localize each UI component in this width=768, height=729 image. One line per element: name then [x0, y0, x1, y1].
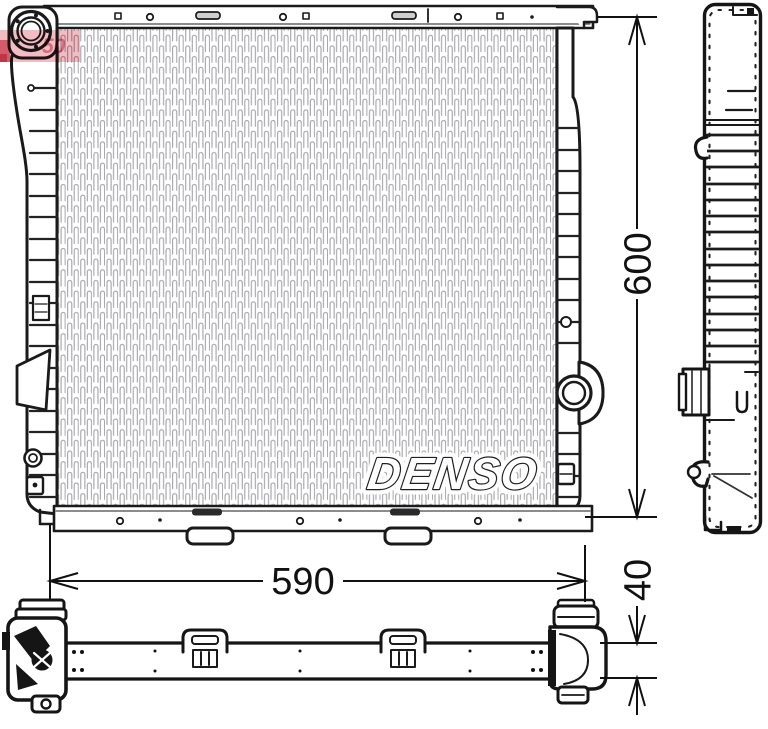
side-inlet-pipe [679, 369, 709, 415]
left-boss [25, 450, 42, 467]
bottom-body [62, 643, 553, 679]
watermark: 50 [0, 30, 80, 62]
watermark-text-fragment: 50 [42, 35, 66, 58]
mounting-tab-left [187, 528, 233, 544]
side-u-clip [737, 392, 747, 412]
left-tank [11, 27, 58, 524]
dimension-extension-lines [600, 643, 657, 678]
top-header [44, 6, 593, 28]
radiator-technical-drawing: DENSO DENSO [0, 0, 768, 729]
mounting-tab-right [385, 528, 431, 544]
dimension-height: 600 [585, 17, 659, 517]
side-outline [705, 5, 761, 533]
side-upper-hook [695, 137, 707, 158]
radiator-core [57, 27, 556, 507]
radiator-side-view [679, 5, 761, 535]
right-tank [557, 7, 603, 530]
bottom-left-end-cap [2, 600, 66, 712]
radiator-bottom-view [2, 600, 606, 712]
dimension-depth: 40 [600, 559, 659, 715]
dimension-height-value: 600 [617, 232, 659, 295]
dimension-depth-value: 40 [617, 559, 659, 601]
bottom-header [54, 506, 592, 544]
watermark-block [0, 30, 80, 62]
left-tank-fitting [33, 296, 49, 320]
denso-logo-text: DENSO [365, 448, 542, 499]
dimension-width-value: 590 [271, 561, 334, 603]
bottom-right-end-cap [548, 600, 606, 703]
left-mount-bracket [17, 350, 50, 410]
denso-logo: DENSO DENSO [365, 448, 542, 499]
radiator-front-view: DENSO DENSO [9, 6, 603, 544]
dimension-width: 590 [50, 524, 585, 603]
